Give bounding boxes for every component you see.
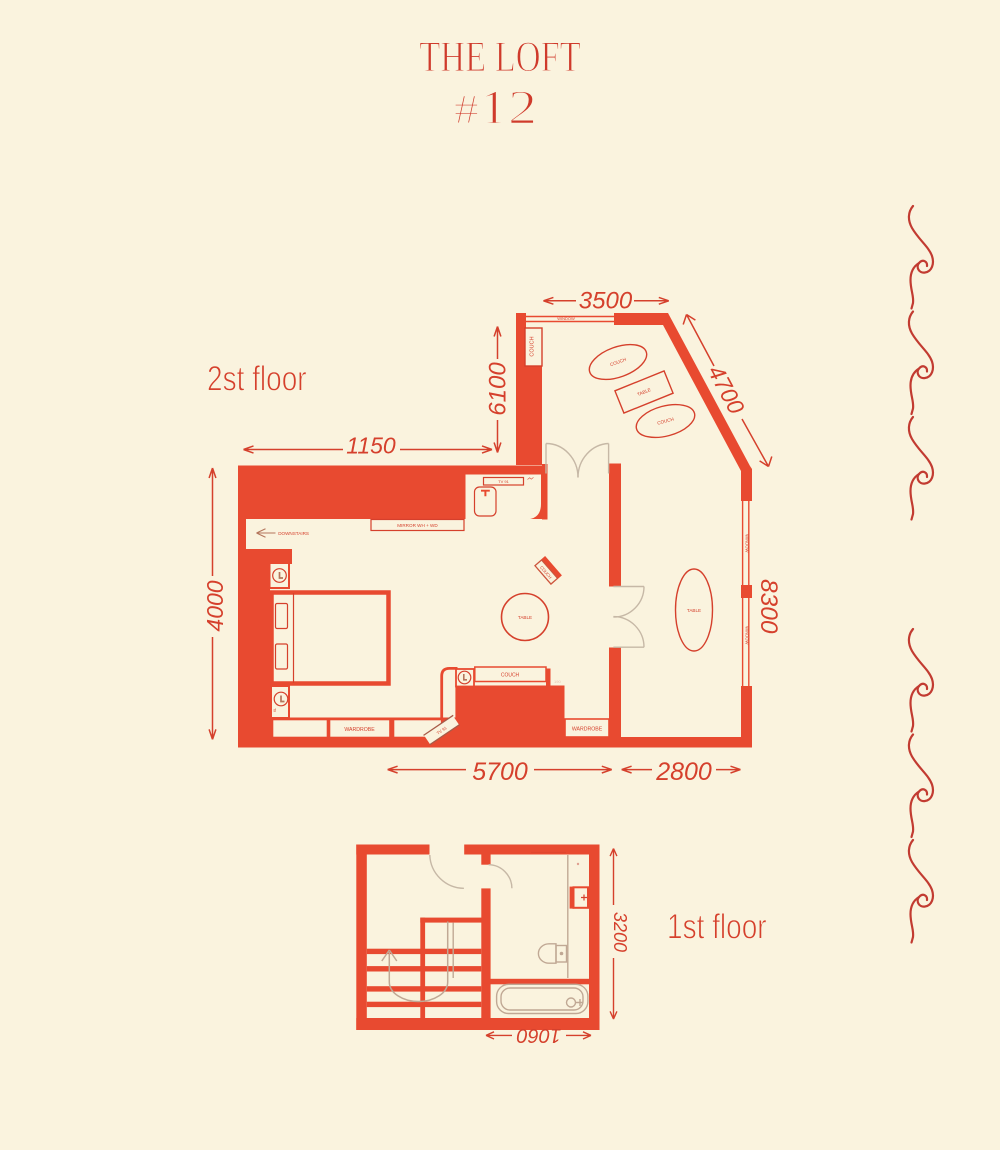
svg-text:190: 190 [554,679,561,684]
svg-text:WARDROBE: WARDROBE [572,727,603,733]
svg-text:#12: #12 [454,80,537,135]
svg-text:COUCH: COUCH [501,673,520,679]
svg-text:TABLE: TABLE [518,615,532,620]
svg-text:1150: 1150 [346,433,396,459]
svg-text:6100: 6100 [485,362,512,416]
svg-text:WARDROBE: WARDROBE [344,727,375,733]
svg-text:3200: 3200 [610,912,630,952]
svg-text:2800: 2800 [655,758,712,786]
svg-text:TABLE: TABLE [687,608,701,613]
svg-text:COUCH: COUCH [530,336,536,356]
svg-text:1st floor: 1st floor [667,906,767,946]
svg-text:3500: 3500 [579,288,633,315]
svg-text:2st floor: 2st floor [207,358,307,398]
svg-text:WINDOW: WINDOW [745,534,750,552]
svg-text:TV 91: TV 91 [498,479,509,484]
svg-text:MIRROR WH + WD: MIRROR WH + WD [397,523,438,528]
svg-text:5700: 5700 [472,758,528,786]
svg-text:8300: 8300 [755,579,782,634]
svg-text:WINDOW: WINDOW [557,316,575,321]
svg-text:WINDOW: WINDOW [745,626,750,644]
svg-text:DOWNSTAIRS: DOWNSTAIRS [278,531,309,536]
svg-text:THE LOFT: THE LOFT [419,33,581,80]
svg-text:1060: 1060 [517,1024,562,1046]
svg-text:4000: 4000 [202,580,228,631]
svg-text:6L: 6L [273,708,277,712]
